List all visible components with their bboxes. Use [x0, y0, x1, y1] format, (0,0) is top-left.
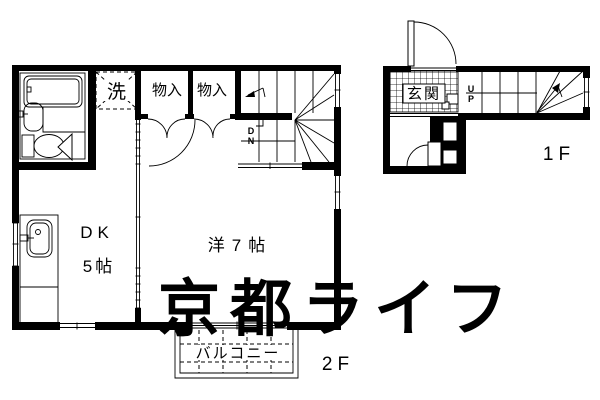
kitchen-sink-icon: [20, 220, 52, 257]
floor-label-1f: 1F: [543, 144, 575, 165]
plan-1f: 玄関 U P: [383, 21, 590, 174]
floorplan-svg: 京都ライフ: [0, 0, 600, 400]
stairs-opening: [238, 163, 302, 170]
window-right-stairs: [335, 74, 341, 107]
floor-label-2f: 2F: [322, 354, 354, 375]
bathroom-divider: [43, 107, 85, 132]
window-left-dk: [13, 223, 19, 266]
sliding-partition: [136, 120, 141, 310]
balcony-label: バルコニー: [196, 345, 281, 362]
entrance-area: 玄関: [390, 71, 458, 117]
bathtub-icon: [24, 76, 82, 107]
closet1-label: 物入: [152, 82, 182, 99]
svg-text:N: N: [248, 136, 255, 146]
interior-door-1f: [407, 142, 441, 166]
svg-text:P: P: [468, 94, 474, 104]
svg-text:U: U: [468, 84, 475, 94]
stairs-direction-arrow-2f: [245, 88, 265, 97]
western-room-label: 洋7帖: [208, 236, 272, 255]
entrance-label: 玄関: [407, 86, 441, 103]
window-right-room: [335, 176, 341, 209]
stairs-1f: U P: [466, 71, 583, 113]
window-right-1f: [584, 78, 590, 107]
laundry-label: 洗: [107, 81, 126, 103]
kitchen-counter: [20, 215, 58, 323]
toilet-icon: [22, 135, 64, 158]
window-bottom-dk: [60, 323, 95, 330]
closet2-label: 物入: [197, 82, 227, 99]
laundry-space: 洗: [96, 72, 137, 109]
room-door-swing: [149, 120, 195, 166]
entrance-door-icon: [408, 21, 456, 71]
stairs-up-label: U P: [468, 84, 475, 104]
floorplan-image: 京都ライフ: [0, 0, 600, 400]
closet-doors: [148, 119, 230, 166]
window-balcony-door: [188, 322, 287, 330]
stairs-down-label: D N: [248, 119, 263, 146]
bathroom: [17, 73, 85, 160]
dk-label: DK: [80, 223, 114, 242]
svg-text:D: D: [248, 126, 255, 136]
dk-size-label: 5帖: [83, 257, 115, 276]
